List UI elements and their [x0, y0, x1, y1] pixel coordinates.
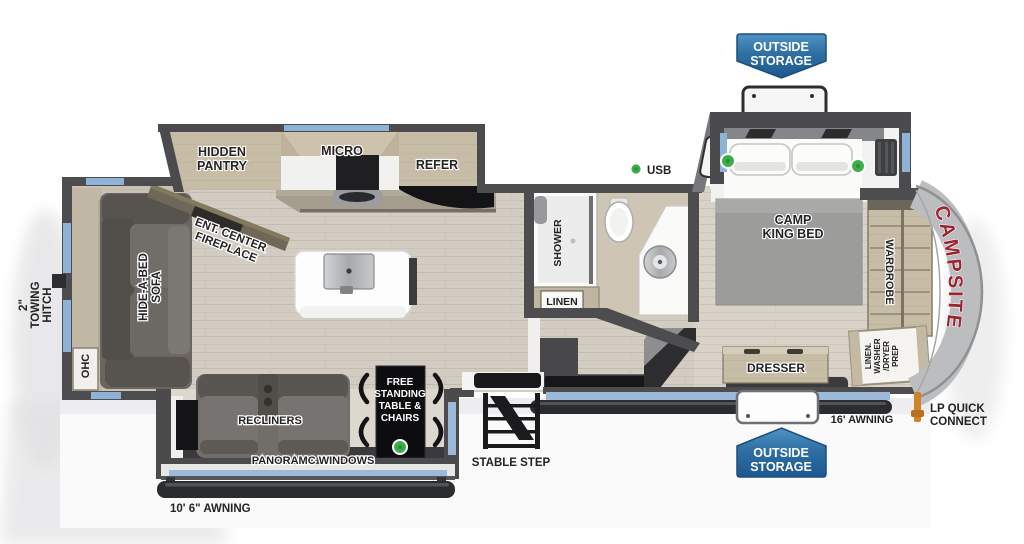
- svg-text:LP QUICK: LP QUICK: [930, 403, 985, 415]
- svg-text:STORAGE: STORAGE: [750, 460, 812, 474]
- svg-text:16' AWNING: 16' AWNING: [831, 414, 894, 426]
- svg-text:WARDROBE: WARDROBE: [883, 239, 895, 304]
- svg-text:RECLINERS: RECLINERS: [238, 415, 302, 427]
- svg-text:PREP: PREP: [891, 344, 900, 366]
- svg-text:FREE: FREE: [387, 377, 414, 388]
- svg-text:/DRYER: /DRYER: [882, 341, 891, 371]
- svg-text:OHC: OHC: [80, 354, 92, 379]
- svg-text:TABLE &: TABLE &: [379, 401, 422, 412]
- svg-text:HITCH: HITCH: [42, 287, 54, 322]
- svg-text:SOFA: SOFA: [151, 271, 163, 302]
- svg-text:STABLE STEP: STABLE STEP: [472, 457, 551, 469]
- svg-text:CONNECT: CONNECT: [930, 416, 987, 428]
- svg-text:STORAGE: STORAGE: [750, 54, 812, 68]
- svg-text:STANDING: STANDING: [374, 389, 426, 400]
- svg-text:MICRO: MICRO: [321, 144, 363, 158]
- svg-text:HIDE-A-BED: HIDE-A-BED: [138, 253, 150, 321]
- svg-text:CAMP: CAMP: [775, 213, 812, 227]
- svg-text:LINEN: LINEN: [546, 296, 578, 308]
- svg-text:HIDDEN: HIDDEN: [198, 145, 246, 159]
- svg-text:USB: USB: [647, 165, 671, 177]
- svg-text:OUTSIDE: OUTSIDE: [753, 446, 809, 460]
- svg-text:SHOWER: SHOWER: [552, 219, 564, 267]
- svg-text:CHAIRS: CHAIRS: [381, 413, 420, 424]
- svg-text:10' 6" AWNING: 10' 6" AWNING: [170, 503, 251, 515]
- svg-text:WASHER: WASHER: [873, 338, 882, 373]
- svg-text:PANORAMC WINDOWS: PANORAMC WINDOWS: [252, 455, 375, 467]
- svg-text:OUTSIDE: OUTSIDE: [753, 40, 809, 54]
- svg-text:TOWING: TOWING: [30, 281, 42, 328]
- svg-text:REFER: REFER: [416, 158, 458, 172]
- svg-text:PANTRY: PANTRY: [197, 159, 248, 173]
- svg-text:DRESSER: DRESSER: [747, 361, 805, 375]
- svg-text:LINEN.: LINEN.: [864, 343, 873, 369]
- svg-text:KING BED: KING BED: [762, 227, 823, 241]
- svg-text:2": 2": [18, 299, 30, 311]
